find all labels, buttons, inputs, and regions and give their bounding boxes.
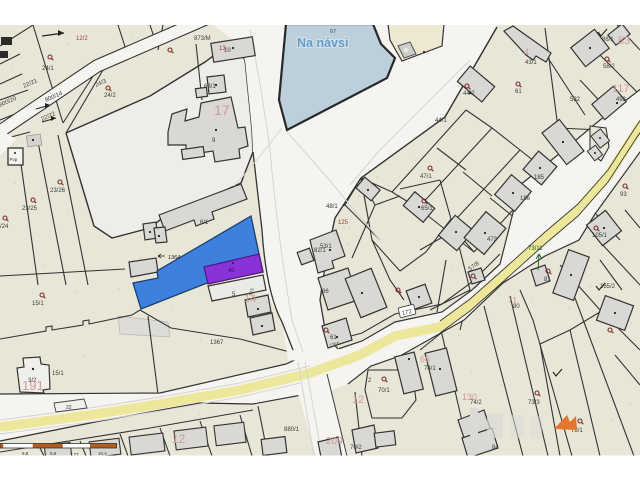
svg-text:22: 22 xyxy=(66,405,72,411)
svg-text:88/1: 88/1 xyxy=(602,37,614,43)
svg-text:93: 93 xyxy=(620,192,627,198)
svg-text:24/1: 24/1 xyxy=(42,66,54,72)
svg-text:10,4: 10,4 xyxy=(98,451,107,456)
svg-text:9,9: 9,9 xyxy=(50,451,57,456)
svg-text:12/2: 12/2 xyxy=(76,36,88,42)
svg-text:63/1: 63/1 xyxy=(204,84,216,90)
svg-text:65/1: 65/1 xyxy=(421,206,433,212)
svg-text:1364: 1364 xyxy=(168,255,180,261)
svg-text:86: 86 xyxy=(322,289,329,295)
svg-text:6/1: 6/1 xyxy=(200,220,209,226)
svg-text:23/26: 23/26 xyxy=(50,188,66,194)
svg-text:73/3: 73/3 xyxy=(528,400,540,406)
svg-text:12: 12 xyxy=(172,432,186,446)
svg-text:44/2: 44/2 xyxy=(463,91,475,97)
svg-text:17: 17 xyxy=(214,102,230,118)
svg-text:/24: /24 xyxy=(0,224,9,230)
svg-text:209: 209 xyxy=(326,436,343,447)
svg-text:81: 81 xyxy=(544,277,551,283)
svg-text:83: 83 xyxy=(618,35,630,47)
svg-text:873/M: 873/M xyxy=(194,36,211,42)
svg-text:582: 582 xyxy=(570,97,581,103)
svg-text:186: 186 xyxy=(520,196,531,202)
svg-text:40: 40 xyxy=(228,268,235,274)
svg-text:58/2: 58/2 xyxy=(603,64,615,70)
svg-text:9,8: 9,8 xyxy=(22,451,29,456)
svg-text:191: 191 xyxy=(22,378,44,393)
svg-text:48/1: 48/1 xyxy=(326,204,338,210)
svg-text:15/1: 15/1 xyxy=(52,371,64,377)
svg-text:13: 13 xyxy=(219,46,226,52)
svg-text:24/2: 24/2 xyxy=(104,93,116,99)
svg-text:47/1: 47/1 xyxy=(420,174,432,180)
svg-text:44/1: 44/1 xyxy=(435,118,447,124)
svg-text:880/1: 880/1 xyxy=(284,427,300,433)
svg-text:165/2: 165/2 xyxy=(600,284,616,290)
svg-text:66: 66 xyxy=(420,354,430,364)
svg-text:4: 4 xyxy=(524,47,529,57)
svg-text:70/1: 70/1 xyxy=(378,388,390,394)
svg-text:67: 67 xyxy=(330,29,336,35)
svg-text:105/1: 105/1 xyxy=(592,233,608,239)
svg-text:74/1: 74/1 xyxy=(424,366,436,372)
svg-text:15/1: 15/1 xyxy=(32,301,44,307)
svg-text:117: 117 xyxy=(612,83,630,95)
svg-text:73/11: 73/11 xyxy=(528,246,543,252)
svg-text:Pvp: Pvp xyxy=(10,157,18,162)
svg-text:84: 84 xyxy=(492,445,499,451)
svg-text:473: 473 xyxy=(487,237,498,243)
svg-text:71: 71 xyxy=(508,296,517,305)
svg-text:70/2: 70/2 xyxy=(350,445,362,451)
svg-text:23/25: 23/25 xyxy=(22,206,38,212)
svg-text:14: 14 xyxy=(244,293,256,305)
svg-text:185: 185 xyxy=(534,175,545,181)
svg-text:43/1: 43/1 xyxy=(525,60,537,66)
svg-text:130: 130 xyxy=(462,392,477,402)
svg-text:125: 125 xyxy=(338,220,349,226)
svg-text:Na návsi: Na návsi xyxy=(297,36,348,50)
svg-text:1367: 1367 xyxy=(210,340,224,346)
svg-text:12: 12 xyxy=(352,394,364,406)
svg-text:61: 61 xyxy=(515,89,522,95)
